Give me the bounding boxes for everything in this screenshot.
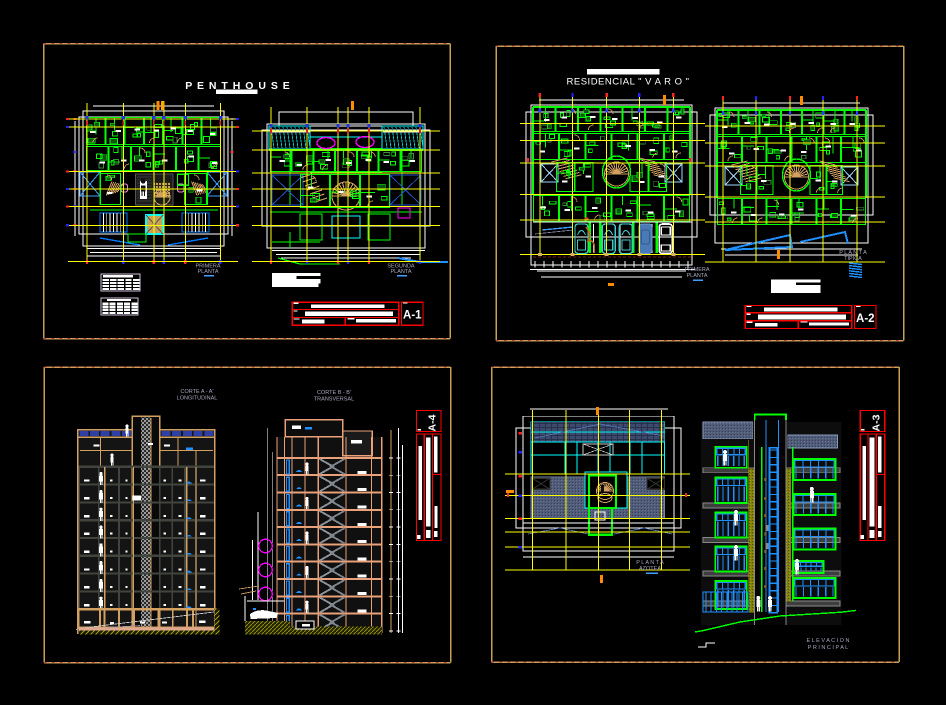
svg-text:LONGITUDINAL: LONGITUDINAL xyxy=(177,396,218,402)
svg-text:A-1: A-1 xyxy=(403,310,422,322)
svg-text:CORTE B - B': CORTE B - B' xyxy=(317,390,351,396)
svg-text:CORTE A - A': CORTE A - A' xyxy=(180,389,213,395)
svg-text:PLANTA: PLANTA xyxy=(198,269,219,275)
svg-text:E L E V A C I O N: E L E V A C I O N xyxy=(807,638,850,644)
svg-text:TRANSVERSAL: TRANSVERSAL xyxy=(314,397,354,403)
svg-text:RESIDENCIAL " V A R O ": RESIDENCIAL " V A R O " xyxy=(567,77,690,88)
svg-text:P R I N C I P A L: P R I N C I P A L xyxy=(808,645,848,651)
svg-text:PLANTA: PLANTA xyxy=(391,269,412,275)
svg-text:A-3: A-3 xyxy=(870,414,882,431)
svg-text:A-4: A-4 xyxy=(427,414,439,431)
svg-text:TIPICA: TIPICA xyxy=(844,256,862,262)
svg-text:A-2: A-2 xyxy=(856,313,875,325)
svg-text:AZOTEA: AZOTEA xyxy=(639,566,661,572)
svg-text:PLANTA: PLANTA xyxy=(687,273,708,279)
